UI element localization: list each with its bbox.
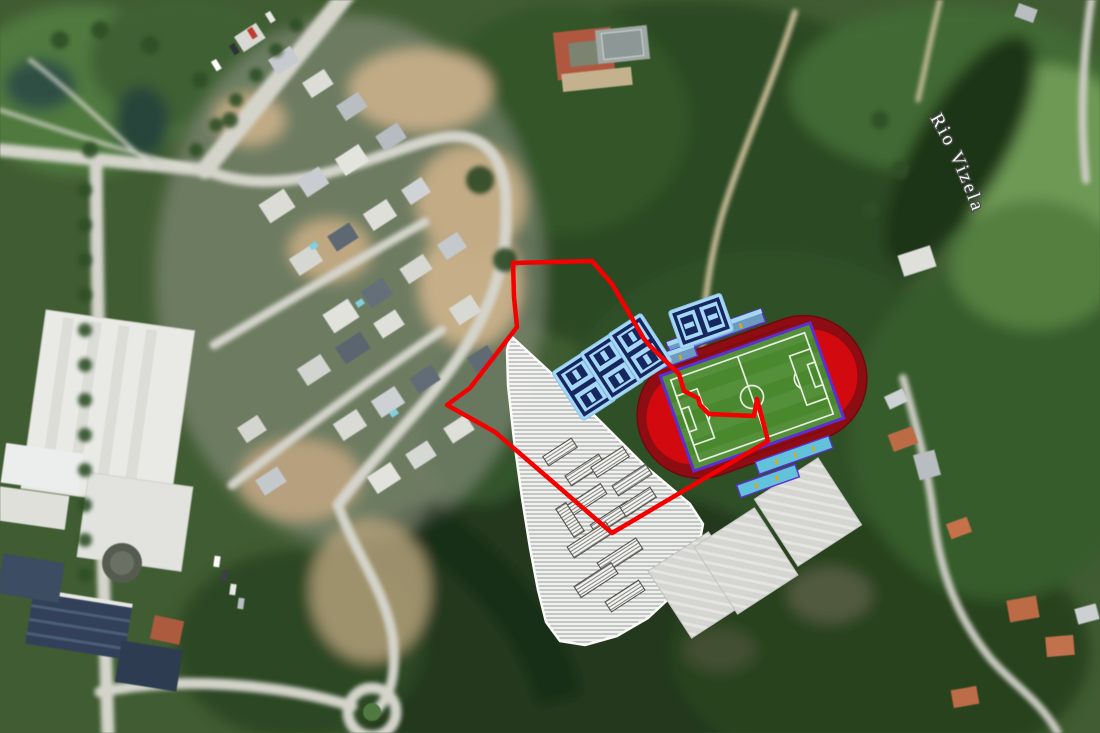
satellite-map-view[interactable]: Rio Vizela: [0, 0, 1100, 733]
stadium: [620, 298, 885, 496]
site-plan-overlay: Rio Vizela: [0, 0, 1100, 733]
svg-text:Rio Vizela: Rio Vizela: [926, 110, 989, 215]
river-label: Rio Vizela: [926, 110, 989, 246]
river-label-text: Rio Vizela: [926, 110, 989, 215]
